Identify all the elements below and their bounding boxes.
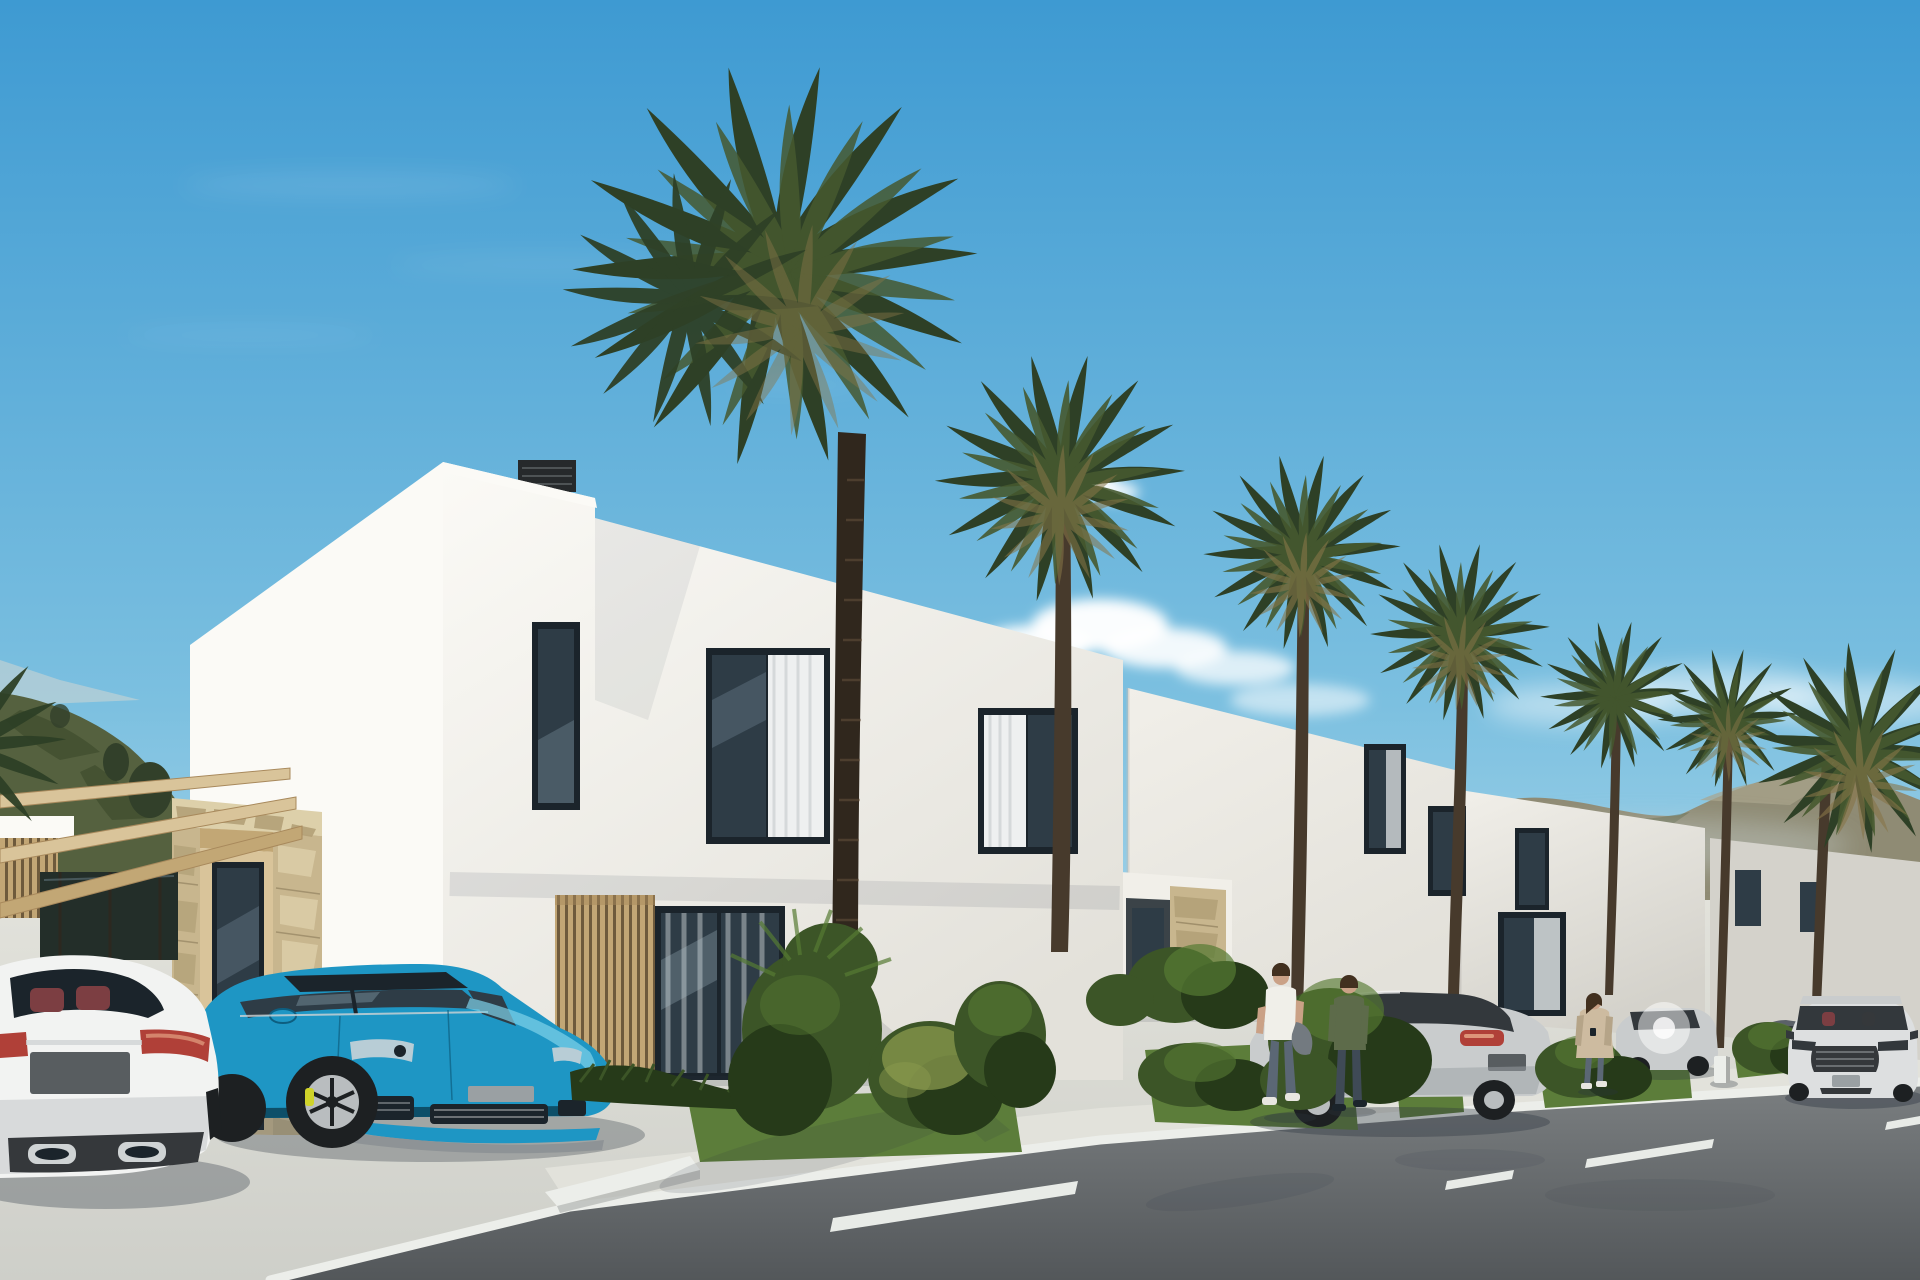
trunk-trim bbox=[26, 1040, 142, 1045]
curtain bbox=[1386, 750, 1401, 848]
phone bbox=[1590, 1028, 1596, 1036]
render-stage bbox=[0, 0, 1920, 1280]
rear-seat bbox=[30, 988, 64, 1012]
car-roof bbox=[1800, 996, 1902, 1004]
hub-cap bbox=[326, 1096, 338, 1108]
shoe bbox=[1262, 1097, 1277, 1105]
headlight-lens bbox=[394, 1045, 406, 1057]
bush bbox=[728, 1024, 832, 1136]
person-shadow bbox=[1264, 1113, 1316, 1123]
wheel bbox=[1893, 1084, 1913, 1102]
wheel-rim bbox=[1484, 1091, 1504, 1109]
bush-highlight bbox=[968, 984, 1032, 1036]
side-intake bbox=[558, 1100, 586, 1116]
cloud bbox=[120, 325, 380, 345]
shoe bbox=[1581, 1083, 1592, 1089]
bollard-side bbox=[1726, 1056, 1730, 1083]
occupant bbox=[1822, 1012, 1835, 1026]
sun-glare bbox=[1653, 1017, 1675, 1039]
curtain bbox=[768, 655, 824, 837]
house-1-window-narrow bbox=[532, 622, 580, 810]
taillight-inner bbox=[1464, 1034, 1494, 1038]
house-4-window bbox=[1735, 870, 1761, 926]
frond-shadow bbox=[1395, 1149, 1545, 1171]
wheel bbox=[1687, 1056, 1709, 1076]
license-plate bbox=[468, 1086, 534, 1102]
occupant bbox=[1862, 1012, 1875, 1026]
cloud bbox=[180, 172, 520, 198]
exhaust-inner bbox=[125, 1146, 159, 1158]
wheel bbox=[1789, 1083, 1809, 1101]
shoe bbox=[1353, 1100, 1367, 1107]
frond-shadow bbox=[1545, 1179, 1775, 1211]
bush bbox=[984, 1032, 1056, 1108]
shoe bbox=[1596, 1081, 1607, 1087]
bush bbox=[1086, 974, 1154, 1026]
shoe bbox=[1285, 1093, 1300, 1101]
leg bbox=[1597, 1056, 1604, 1082]
taillight bbox=[0, 1032, 28, 1058]
bush-highlight bbox=[1164, 944, 1236, 996]
house-2-window-upper bbox=[1364, 744, 1406, 854]
garden-wall bbox=[0, 816, 74, 840]
window-glass bbox=[1519, 833, 1545, 905]
cloud-bank bbox=[1175, 651, 1295, 685]
bush-highlight bbox=[1164, 1042, 1236, 1082]
bush-highlight bbox=[760, 975, 840, 1035]
license-plate bbox=[30, 1052, 130, 1094]
curtain bbox=[1534, 918, 1560, 1010]
bush-flowers bbox=[879, 1062, 931, 1098]
person-shadow bbox=[1578, 1088, 1618, 1096]
shoe bbox=[1332, 1104, 1346, 1111]
tree bbox=[50, 704, 70, 728]
exhaust-inner bbox=[35, 1148, 69, 1160]
house-1-window-wide bbox=[706, 648, 830, 844]
car-silver-driving bbox=[1785, 996, 1920, 1109]
tree bbox=[103, 743, 129, 781]
grille bbox=[430, 1104, 548, 1124]
brake-caliper bbox=[305, 1088, 314, 1106]
lower-intake bbox=[1820, 1088, 1872, 1094]
louver-top bbox=[555, 895, 655, 905]
windshield bbox=[1796, 1006, 1908, 1030]
house-3-window-upper bbox=[1515, 828, 1549, 910]
villa-street-render bbox=[0, 0, 1920, 1280]
rear-seat bbox=[76, 986, 110, 1010]
license-plate bbox=[1832, 1075, 1860, 1087]
house-3-window-ground bbox=[1498, 912, 1566, 1016]
